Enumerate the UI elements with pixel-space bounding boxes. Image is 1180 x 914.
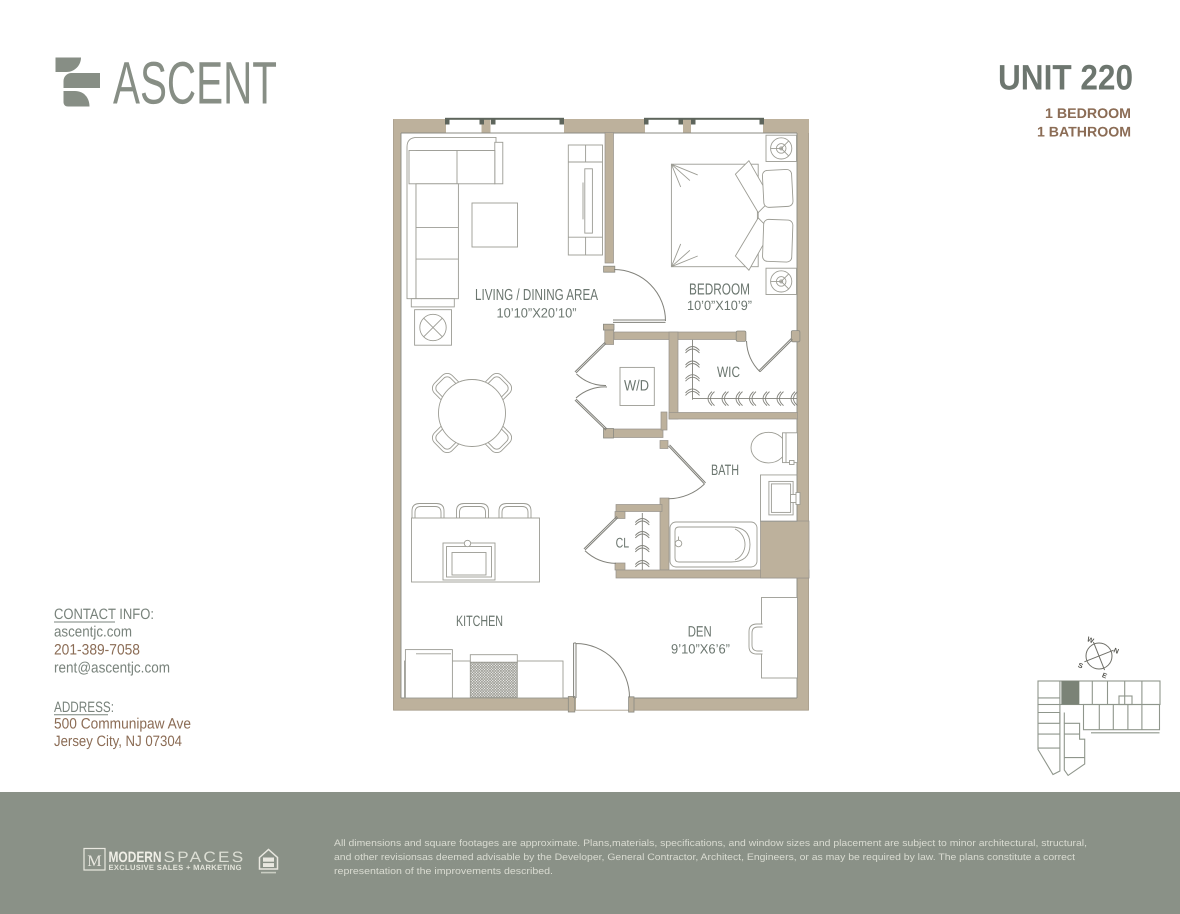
svg-text:LIVING / DINING AREA: LIVING / DINING AREA	[475, 287, 598, 304]
svg-text:ascentjc.com: ascentjc.com	[54, 624, 132, 641]
svg-text:UNIT 220: UNIT 220	[998, 58, 1133, 98]
svg-text:10’0”X10’9”: 10’0”X10’9”	[687, 298, 752, 313]
svg-text:EXCLUSIVE SALES + MARKETING: EXCLUSIVE SALES + MARKETING	[109, 863, 242, 872]
svg-text:500 Communipaw Ave: 500 Communipaw Ave	[54, 716, 191, 733]
svg-text:rent@ascentjc.com: rent@ascentjc.com	[54, 660, 170, 677]
svg-text:WIC: WIC	[717, 364, 740, 381]
svg-text:10’10”X20’10”: 10’10”X20’10”	[497, 306, 577, 321]
svg-text:KITCHEN: KITCHEN	[456, 613, 503, 630]
svg-text:BATH: BATH	[711, 462, 739, 479]
svg-text:DEN: DEN	[688, 624, 712, 641]
svg-text:CL: CL	[616, 534, 630, 550]
svg-text:1 BATHROOM: 1 BATHROOM	[1037, 124, 1131, 140]
svg-text:1 BEDROOM: 1 BEDROOM	[1045, 105, 1131, 121]
svg-text:representation of the improvem: representation of the improvements descr…	[334, 865, 553, 876]
svg-text:9’10”X6’6”: 9’10”X6’6”	[671, 641, 730, 656]
svg-text:All dimensions and square foot: All dimensions and square footages are a…	[334, 837, 1087, 848]
svg-text:M: M	[87, 853, 101, 870]
svg-text:and other revisionsas deemed a: and other revisionsas deemed advisable b…	[334, 851, 1075, 862]
svg-text:BEDROOM: BEDROOM	[689, 282, 750, 299]
svg-text:W/D: W/D	[624, 378, 649, 395]
svg-text:Jersey City, NJ 07304: Jersey City, NJ 07304	[54, 733, 182, 750]
svg-text:ASCENT: ASCENT	[113, 49, 277, 116]
svg-text:CONTACT INFO:: CONTACT INFO:	[54, 606, 154, 623]
svg-text:201-389-7058: 201-389-7058	[54, 642, 140, 659]
svg-text:ADDRESS:: ADDRESS:	[54, 699, 114, 716]
